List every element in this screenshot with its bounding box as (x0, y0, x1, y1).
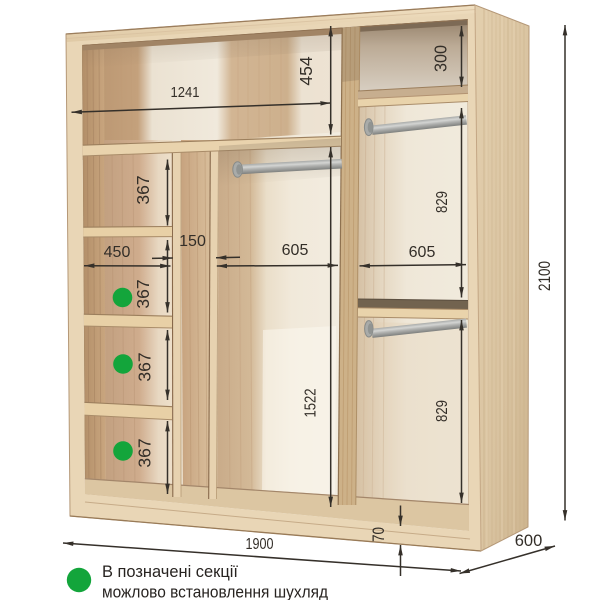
svg-text:150: 150 (179, 233, 206, 250)
svg-text:450: 450 (104, 244, 131, 261)
svg-text:1900: 1900 (246, 536, 274, 553)
svg-text:1241: 1241 (171, 84, 200, 101)
svg-text:можлово встановлення шухляд: можлово встановлення шухляд (102, 583, 328, 600)
svg-text:367: 367 (133, 175, 153, 204)
svg-text:2100: 2100 (535, 261, 554, 291)
svg-text:367: 367 (133, 279, 153, 308)
svg-text:829: 829 (434, 191, 451, 213)
svg-text:605: 605 (282, 242, 309, 259)
svg-text:70: 70 (369, 527, 388, 542)
svg-text:367: 367 (135, 352, 155, 381)
svg-text:829: 829 (434, 400, 451, 422)
svg-text:1522: 1522 (303, 388, 320, 417)
svg-text:В позначені секції: В позначені секції (102, 562, 238, 581)
svg-text:454: 454 (296, 56, 316, 85)
svg-text:600: 600 (515, 532, 543, 550)
svg-text:300: 300 (431, 45, 451, 72)
svg-text:367: 367 (135, 438, 155, 467)
svg-text:605: 605 (409, 244, 436, 261)
